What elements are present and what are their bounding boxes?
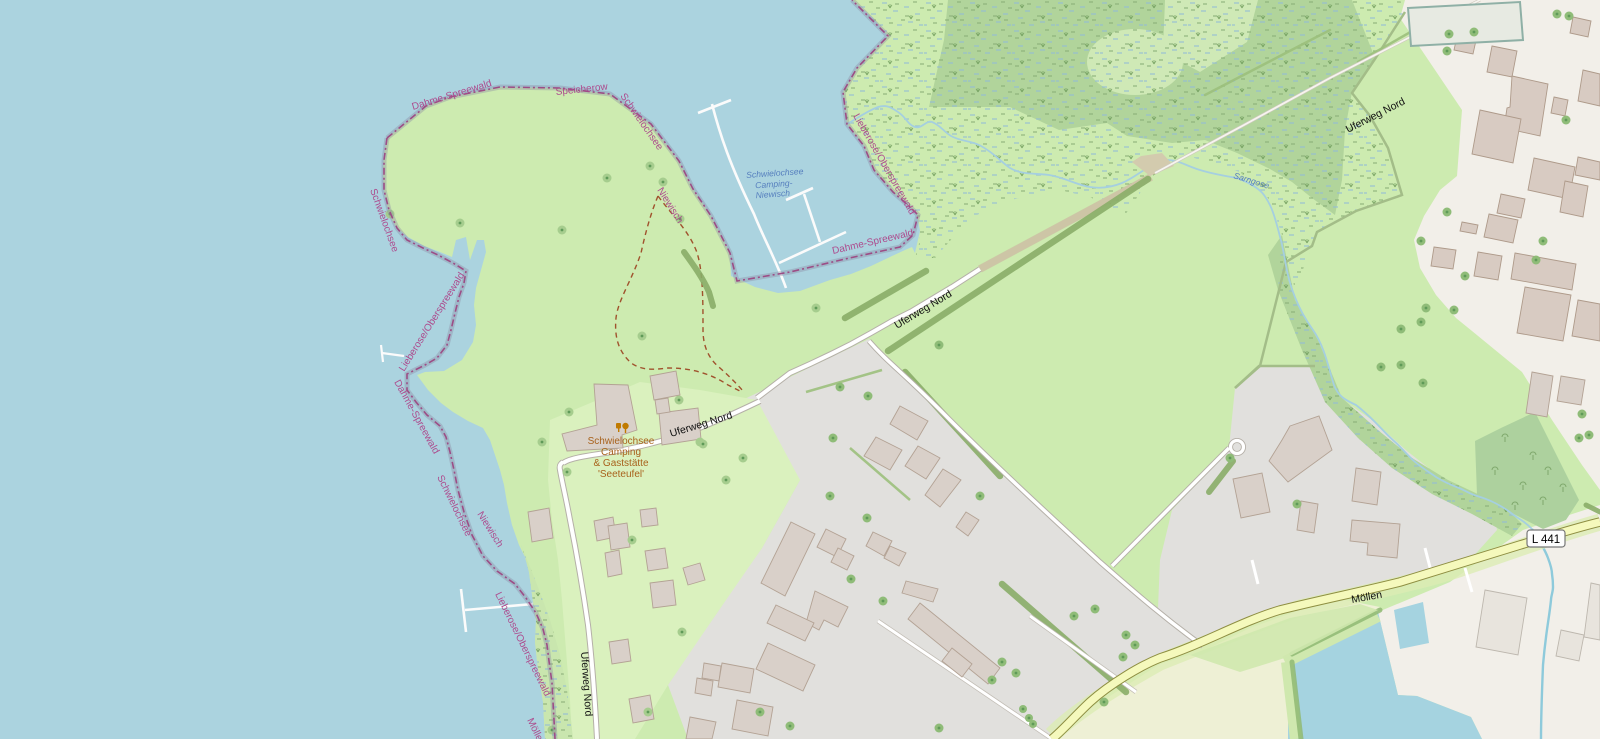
svg-text:Schwielochsee: Schwielochsee [588,436,655,447]
svg-text:& Gaststätte: & Gaststätte [593,458,648,469]
svg-text:'Seeteufel': 'Seeteufel' [598,469,644,480]
svg-text:Camping: Camping [601,447,641,458]
svg-text:L 441: L 441 [1532,534,1560,546]
